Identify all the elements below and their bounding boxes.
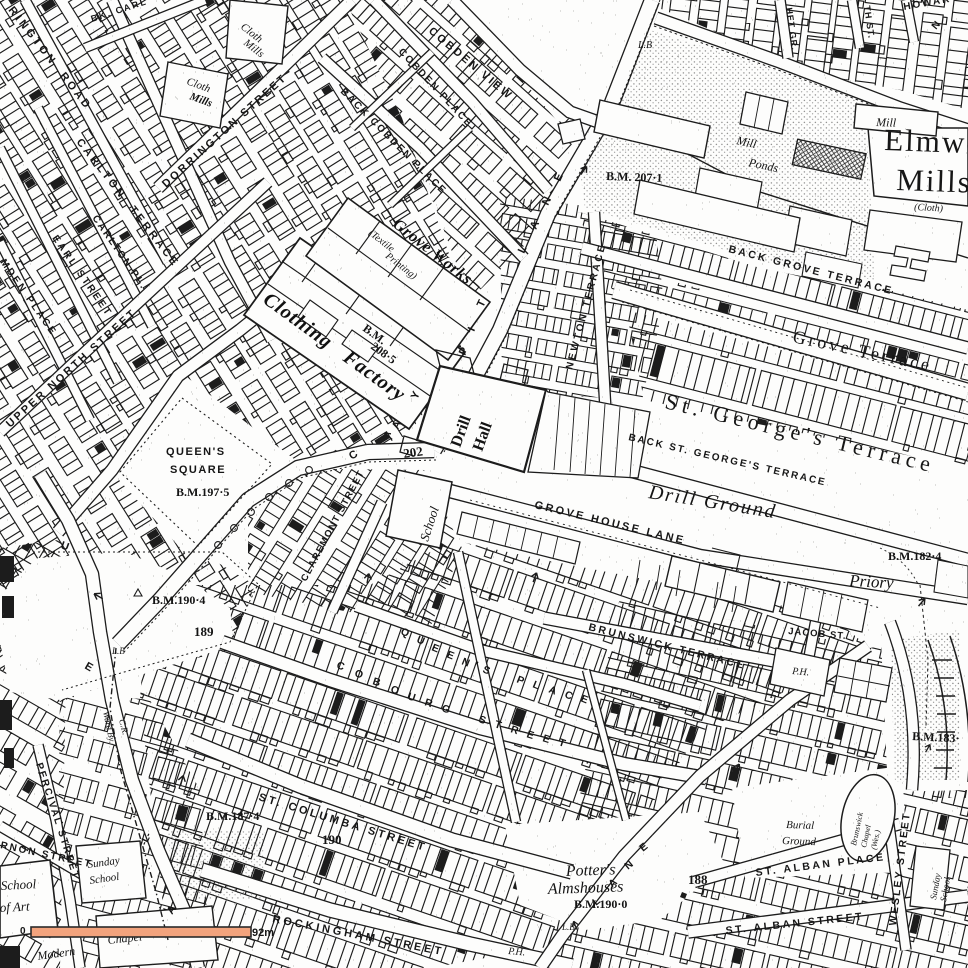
svg-text:202: 202: [402, 443, 423, 461]
svg-text:L.B: L.B: [637, 40, 652, 51]
svg-text:SQUARE: SQUARE: [170, 464, 226, 476]
svg-text:B.M.190·4: B.M.190·4: [152, 593, 205, 607]
svg-text:Mills: Mills: [896, 162, 968, 200]
svg-text:Ground: Ground: [782, 835, 817, 848]
svg-text:B.M.183·: B.M.183·: [912, 729, 960, 745]
svg-text:B.M.187·4: B.M.187·4: [206, 809, 259, 823]
svg-text:0: 0: [20, 926, 26, 937]
svg-text:of Art: of Art: [0, 898, 30, 915]
svg-text:Potter's: Potter's: [565, 861, 616, 880]
svg-text:92m: 92m: [252, 927, 274, 939]
svg-text:190: 190: [322, 832, 342, 847]
svg-text:B.M.182·4: B.M.182·4: [888, 549, 941, 563]
svg-text:L.B: L.B: [561, 922, 575, 932]
svg-text:Priory: Priory: [848, 571, 895, 592]
svg-text:188: 188: [688, 872, 708, 887]
svg-text:Burial: Burial: [786, 819, 815, 832]
svg-text:B.M.197·5: B.M.197·5: [176, 485, 229, 499]
svg-text:189: 189: [194, 624, 214, 639]
svg-text:B.M. 207·1: B.M. 207·1: [606, 169, 663, 185]
svg-text:Elmwo: Elmwo: [884, 122, 968, 160]
svg-text:School: School: [0, 876, 37, 893]
svg-text:L.B: L.B: [111, 646, 125, 656]
svg-text:P.H.: P.H.: [507, 946, 526, 959]
svg-text:Mill: Mill: [875, 115, 897, 130]
svg-text:QUEEN'S: QUEEN'S: [166, 446, 226, 458]
svg-text:(Cloth): (Cloth): [914, 202, 944, 215]
svg-text:P.H.: P.H.: [791, 666, 810, 679]
